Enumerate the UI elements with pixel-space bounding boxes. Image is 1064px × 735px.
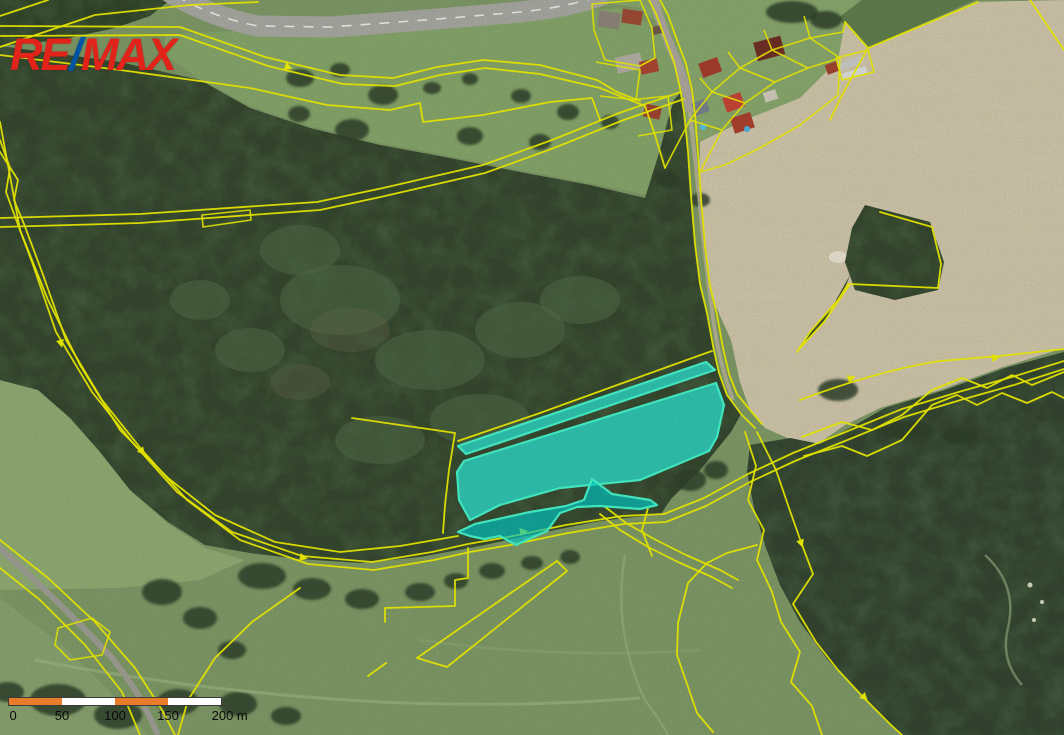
scale-segment-orange	[115, 698, 168, 705]
scale-tick-100: 100	[104, 708, 126, 723]
remax-logo-re: RE	[10, 29, 69, 80]
map-canvas	[0, 0, 1064, 735]
scale-tick-50: 50	[55, 708, 69, 723]
scale-segment-orange	[9, 698, 62, 705]
remax-logo-slash: /	[69, 29, 82, 80]
scale-tick-200m: 200 m	[212, 708, 248, 723]
scale-tick-0: 0	[10, 708, 17, 723]
remax-logo-max: MAX	[81, 29, 175, 80]
scale-bar-ticks: 0 50 100 150 200 m	[8, 708, 258, 726]
scale-bar-segments	[8, 697, 222, 706]
scale-bar: 0 50 100 150 200 m	[8, 697, 258, 726]
scale-segment-white	[168, 698, 221, 705]
photo-grain	[0, 0, 1064, 735]
remax-logo: RE/MAX	[10, 32, 175, 77]
scale-segment-white	[62, 698, 115, 705]
aerial-map: RE/MAX 0 50 100 150 200 m	[0, 0, 1064, 735]
scale-tick-150: 150	[157, 708, 179, 723]
